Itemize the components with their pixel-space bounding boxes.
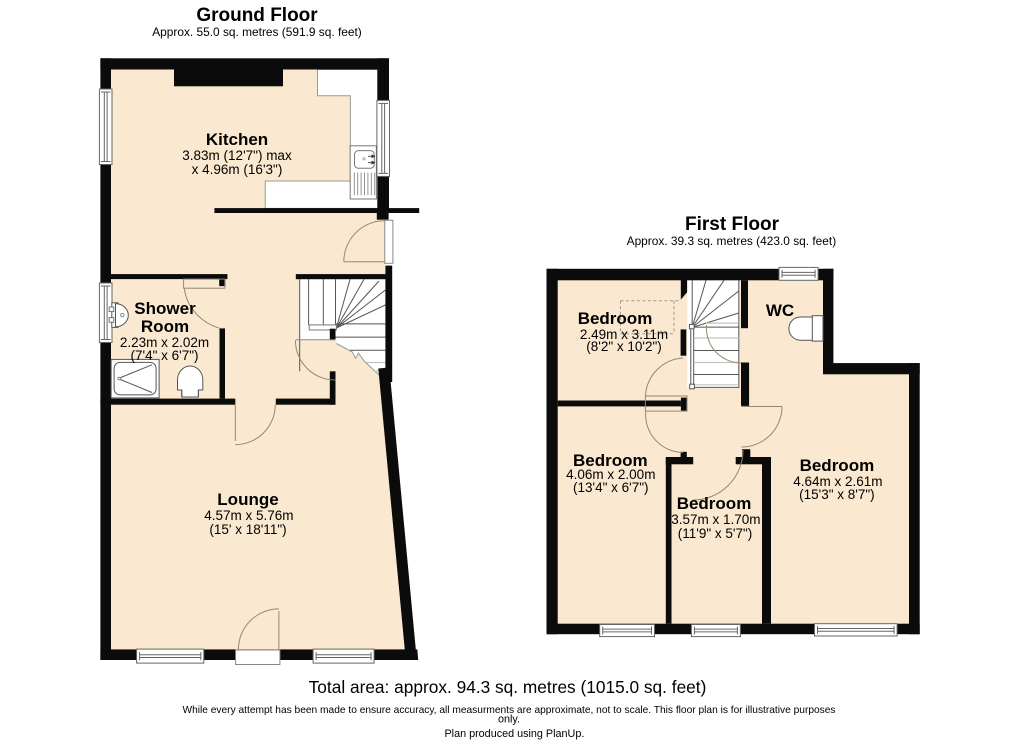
svg-text:(15' x 18'11"): (15' x 18'11") — [209, 522, 286, 537]
svg-text:(15'3" x 8'7"): (15'3" x 8'7") — [799, 487, 875, 502]
svg-text:Bedroom: Bedroom — [800, 456, 875, 475]
svg-text:4.57m x 5.76m: 4.57m x 5.76m — [204, 508, 293, 523]
svg-text:Room: Room — [141, 317, 189, 336]
svg-text:Kitchen: Kitchen — [206, 130, 268, 149]
svg-text:3.83m (12'7") max: 3.83m (12'7") max — [182, 148, 292, 163]
svg-text:Approx. 39.3 sq. metres (423.0: Approx. 39.3 sq. metres (423.0 sq. feet) — [627, 234, 837, 248]
svg-text:Shower: Shower — [134, 299, 196, 318]
svg-text:WC: WC — [766, 301, 794, 320]
svg-text:Lounge: Lounge — [217, 490, 278, 509]
svg-text:Total area: approx. 94.3 sq. m: Total area: approx. 94.3 sq. metres (101… — [309, 677, 707, 697]
svg-text:First Floor: First Floor — [685, 214, 780, 235]
svg-text:(7'4" x 6'7"): (7'4" x 6'7") — [130, 348, 198, 363]
svg-text:Ground Floor: Ground Floor — [196, 5, 318, 26]
svg-text:Plan produced using PlanUp.: Plan produced using PlanUp. — [444, 728, 584, 740]
svg-text:(11'9" x 5'7"): (11'9" x 5'7") — [678, 526, 753, 541]
svg-text:(8'2" x 10'2"): (8'2" x 10'2") — [586, 339, 662, 354]
svg-text:Bedroom: Bedroom — [578, 309, 653, 328]
svg-text:3.57m x 1.70m: 3.57m x 1.70m — [671, 512, 760, 527]
svg-text:(13'4" x 6'7"): (13'4" x 6'7") — [573, 480, 649, 495]
svg-text:Approx. 55.0 sq. metres (591.9: Approx. 55.0 sq. metres (591.9 sq. feet) — [152, 25, 362, 39]
svg-text:only.: only. — [498, 714, 520, 726]
svg-text:Bedroom: Bedroom — [677, 494, 752, 513]
svg-text:x 4.96m (16'3"): x 4.96m (16'3") — [192, 162, 283, 177]
